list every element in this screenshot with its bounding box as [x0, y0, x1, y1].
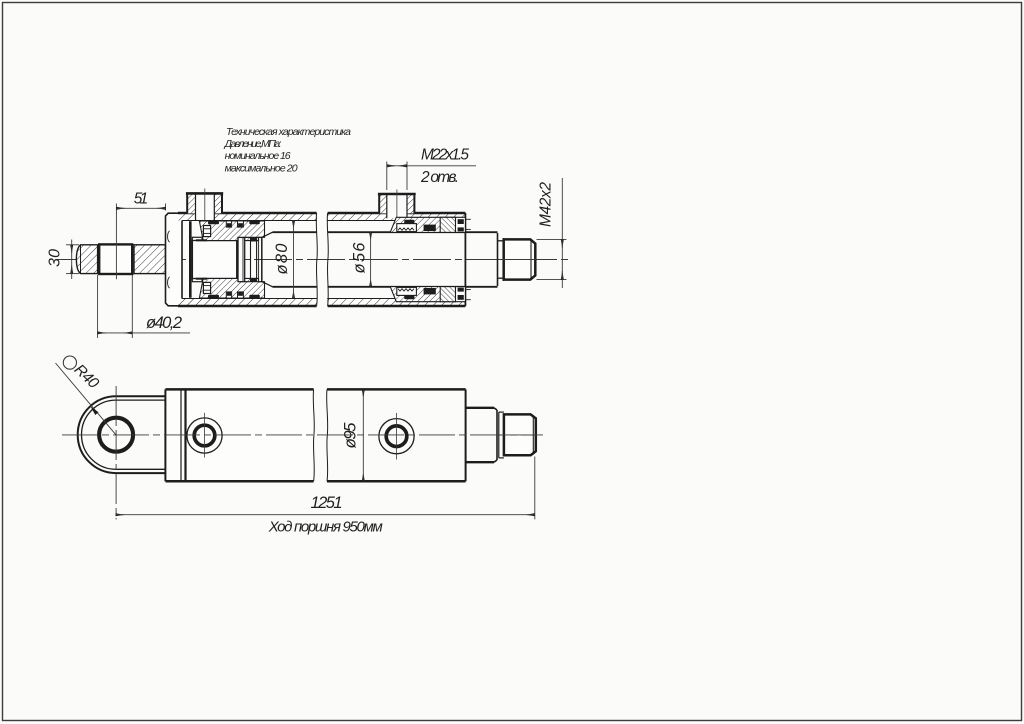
svg-text:ø40,2: ø40,2 [146, 314, 182, 332]
svg-text:ø80: ø80 [273, 243, 291, 275]
svg-text:Давление,МПа:: Давление,МПа: [224, 138, 282, 150]
svg-text:30: 30 [47, 249, 64, 267]
svg-text:ø95: ø95 [341, 422, 360, 449]
svg-text:51: 51 [134, 191, 149, 208]
svg-text:Ход поршня 950мм: Ход поршня 950мм [268, 519, 383, 536]
svg-text:1251: 1251 [311, 494, 343, 512]
svg-text:2 отв.: 2 отв. [420, 169, 459, 186]
svg-text:максимальное 20: максимальное 20 [225, 163, 298, 175]
svg-text:M42x2: M42x2 [538, 182, 555, 227]
svg-text:M22x1.5: M22x1.5 [421, 147, 469, 164]
svg-text:ø56: ø56 [351, 242, 369, 274]
svg-text:Техническая характеристика: Техническая характеристика [226, 126, 351, 138]
svg-text:номинальное 16: номинальное 16 [225, 150, 291, 162]
